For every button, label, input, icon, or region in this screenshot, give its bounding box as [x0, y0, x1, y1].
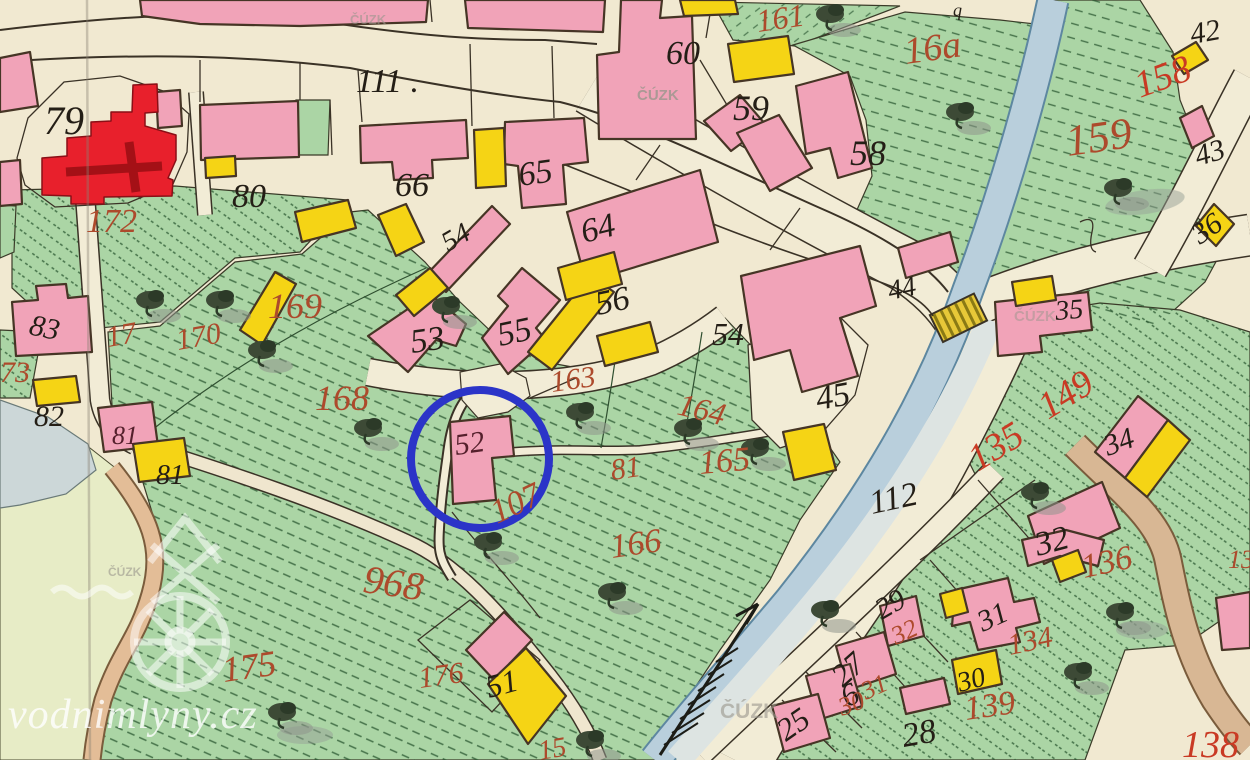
- svg-text:80: 80: [232, 178, 266, 215]
- svg-text:53: 53: [408, 320, 447, 361]
- svg-text:45: 45: [813, 376, 853, 418]
- svg-text:q: q: [953, 0, 962, 20]
- svg-text:35: 35: [1053, 294, 1085, 327]
- svg-text:166: 166: [608, 522, 664, 566]
- svg-text:81: 81: [112, 421, 138, 450]
- svg-text:968: 968: [361, 556, 427, 609]
- svg-text:60: 60: [666, 35, 700, 72]
- svg-text:138: 138: [1182, 724, 1239, 760]
- svg-text:58: 58: [850, 133, 886, 173]
- svg-text:159: 159: [1063, 108, 1135, 166]
- svg-text:73: 73: [0, 356, 30, 389]
- svg-text:42: 42: [1187, 13, 1222, 51]
- svg-text:165: 165: [697, 441, 751, 482]
- svg-text:ČÚZK: ČÚZK: [637, 86, 679, 104]
- svg-text:66: 66: [395, 167, 429, 204]
- svg-text:82: 82: [34, 400, 64, 433]
- svg-text:169: 169: [268, 286, 322, 326]
- svg-text:59: 59: [733, 88, 769, 128]
- svg-text:ČÚZK: ČÚZK: [1014, 307, 1056, 325]
- svg-text:111 .: 111 .: [356, 63, 419, 100]
- svg-text:54: 54: [712, 316, 744, 352]
- svg-text:ČÚZK: ČÚZK: [720, 699, 778, 723]
- svg-text:81: 81: [608, 450, 642, 487]
- svg-text:168: 168: [315, 378, 369, 418]
- svg-text:81: 81: [156, 460, 184, 491]
- svg-text:163: 163: [548, 360, 597, 399]
- svg-text:52: 52: [452, 425, 486, 462]
- svg-text:65: 65: [516, 153, 555, 194]
- svg-text:161: 161: [754, 0, 807, 39]
- svg-text:16a: 16a: [901, 23, 963, 73]
- svg-text:13: 13: [1228, 545, 1250, 574]
- svg-text:139: 139: [962, 684, 1018, 728]
- svg-text:ČÚZK: ČÚZK: [108, 564, 142, 579]
- svg-text:79: 79: [44, 98, 84, 143]
- svg-text:vodnimlyny.cz: vodnimlyny.cz: [8, 692, 258, 738]
- svg-text:ČÚZK: ČÚZK: [350, 12, 387, 27]
- svg-text:176: 176: [416, 656, 465, 695]
- svg-text:15: 15: [536, 732, 569, 760]
- svg-text:28: 28: [899, 713, 939, 755]
- svg-text:172: 172: [86, 203, 137, 240]
